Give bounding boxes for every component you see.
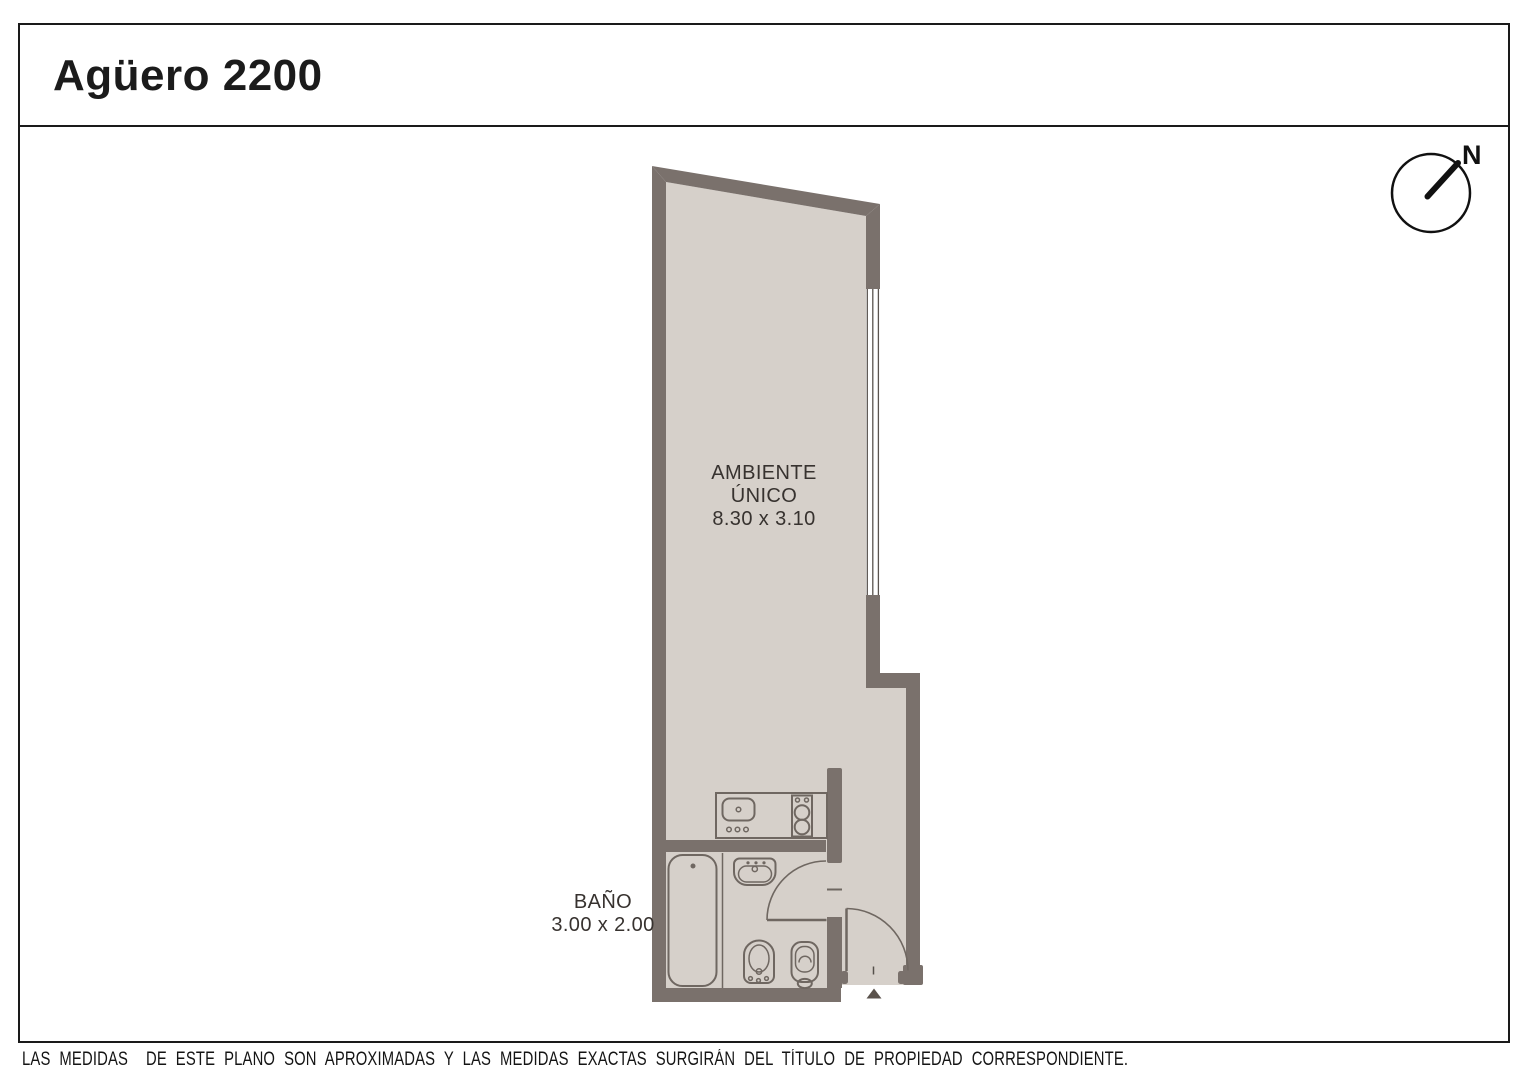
bathroom-dimensions: 3.00 x 2.00 — [523, 914, 683, 937]
entry-arrow-icon — [867, 989, 882, 999]
footer-disclaimer: LAS MEDIDAS DE ESTE PLANO SON APROXIMADA… — [22, 1049, 1128, 1071]
bathroom-name: BAÑO — [523, 891, 683, 914]
main-room-name-line2: ÚNICO — [664, 485, 864, 508]
main-room-label: AMBIENTE ÚNICO 8.30 x 3.10 — [664, 462, 864, 531]
window — [866, 285, 880, 599]
compass-icon — [1392, 154, 1470, 232]
main-room-dimensions: 8.30 x 3.10 — [664, 508, 864, 531]
footer: LAS MEDIDAS DE ESTE PLANO SON APROXIMADA… — [22, 1049, 1510, 1071]
main-room-name-line1: AMBIENTE — [664, 462, 864, 485]
compass-north-label: N — [1462, 142, 1482, 169]
floor-plan — [0, 0, 1528, 1080]
bathroom-label: BAÑO 3.00 x 2.00 — [523, 891, 683, 937]
